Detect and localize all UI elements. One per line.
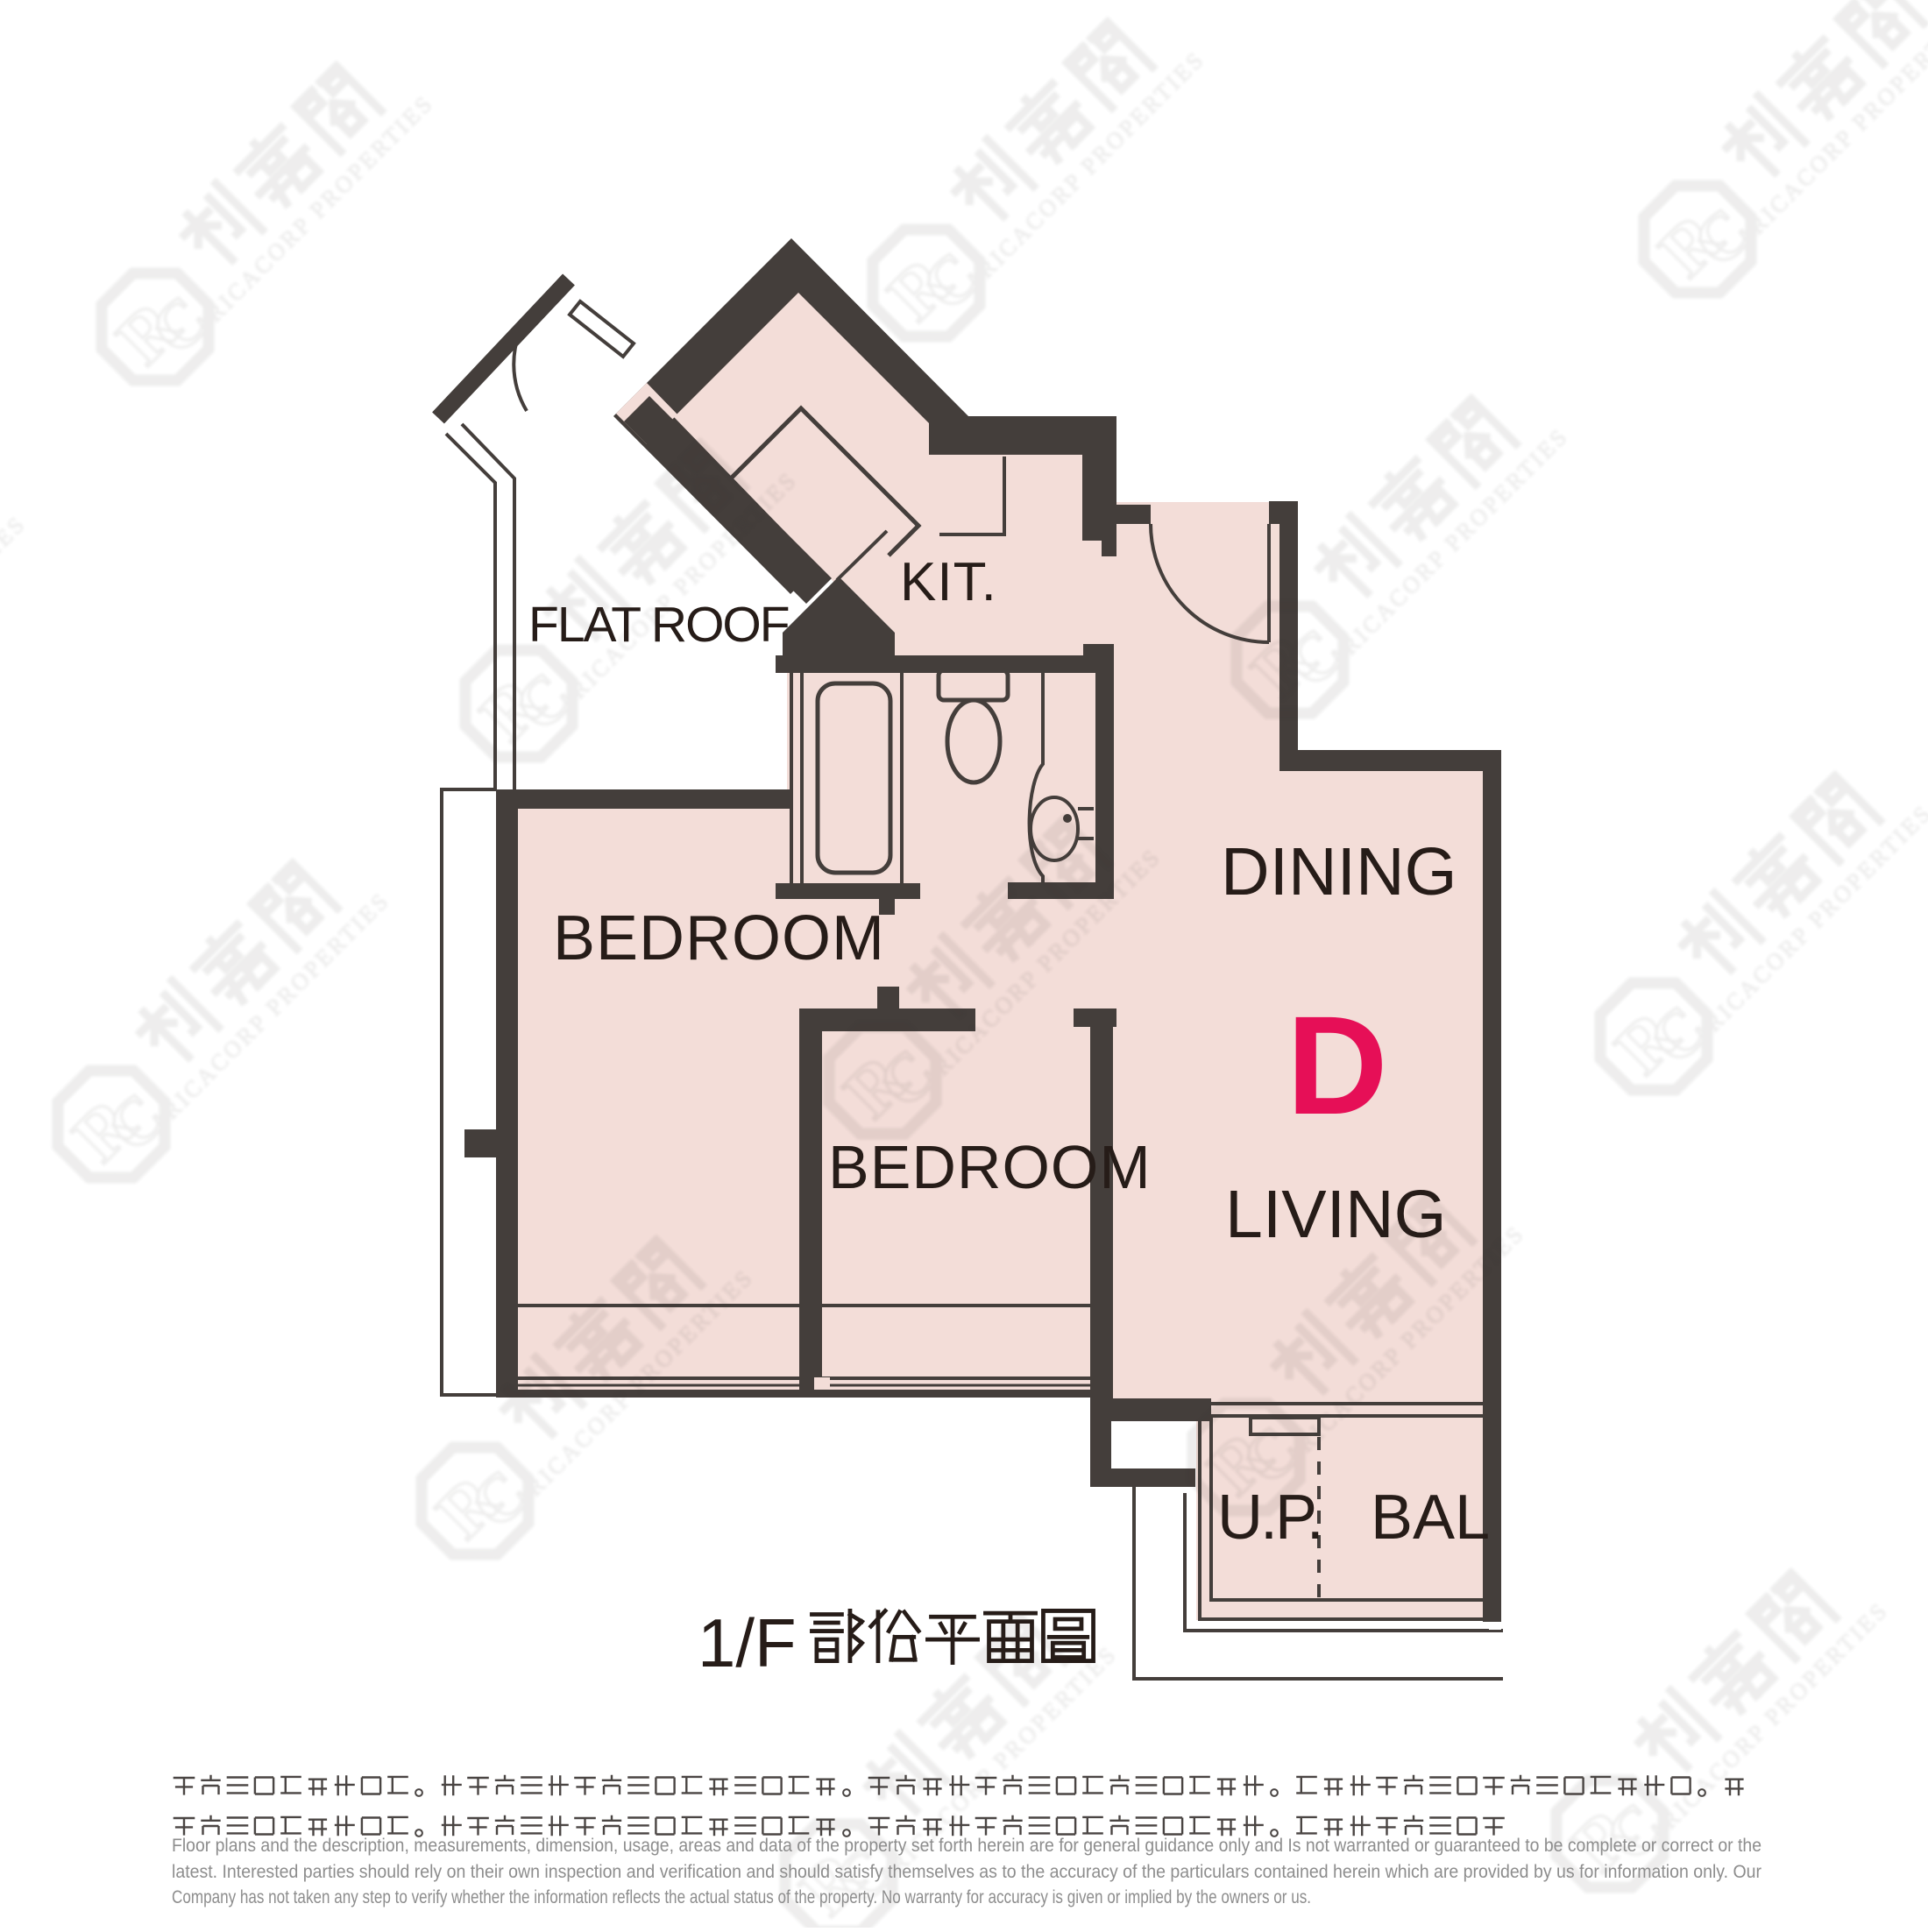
svg-text:BAL: BAL [1371, 1483, 1490, 1553]
svg-text:1/F: 1/F [698, 1604, 797, 1681]
svg-text:latest. Interested parties sho: latest. Interested parties should rely o… [172, 1861, 1761, 1882]
svg-text:BEDROOM: BEDROOM [553, 903, 885, 973]
svg-text:BEDROOM: BEDROOM [828, 1133, 1152, 1201]
svg-text:D: D [1287, 987, 1388, 1143]
svg-text:KIT.: KIT. [900, 552, 997, 612]
svg-text:Floor plans and the descriptio: Floor plans and the description, measure… [172, 1835, 1761, 1856]
svg-text:DINING: DINING [1221, 834, 1457, 909]
svg-text:Company has not taken any step: Company has not taken any step to verify… [172, 1886, 1311, 1907]
